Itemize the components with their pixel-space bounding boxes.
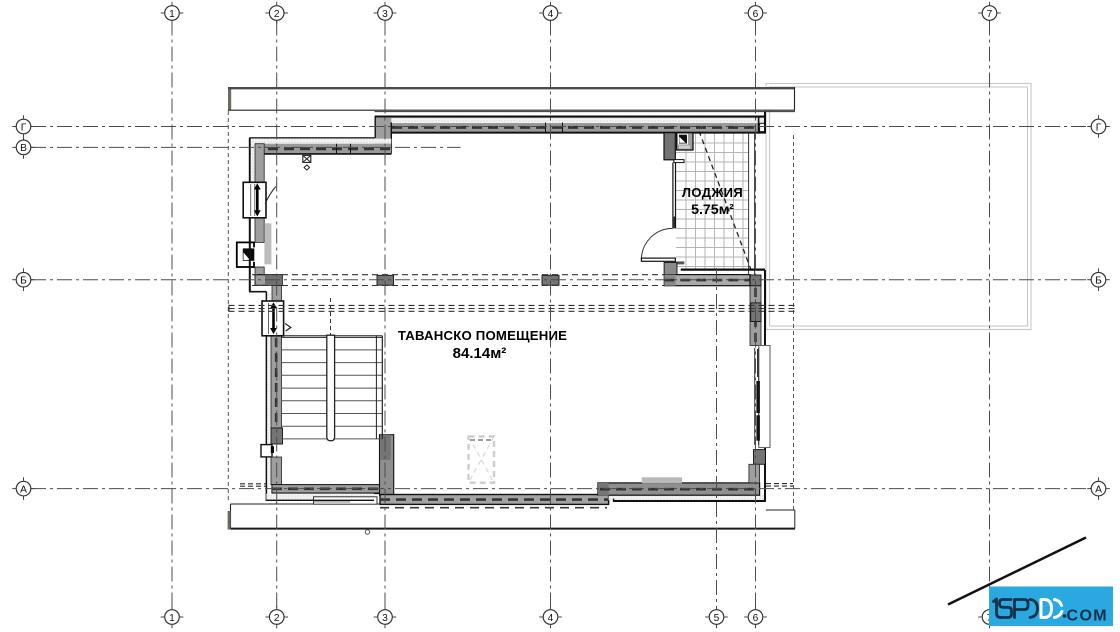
svg-text:ТАВАНСКО ПОМЕЩЕНИЕ: ТАВАНСКО ПОМЕЩЕНИЕ [398, 328, 567, 343]
svg-text:ЛОДЖИЯ: ЛОДЖИЯ [682, 185, 743, 200]
svg-text:1: 1 [169, 613, 175, 624]
svg-text:6: 6 [753, 9, 759, 20]
svg-text:Г: Г [1096, 122, 1102, 133]
svg-text:COM: COM [1067, 608, 1109, 625]
svg-text:4: 4 [548, 613, 554, 624]
svg-text:6: 6 [753, 613, 759, 624]
svg-text:Б: Б [1095, 276, 1102, 287]
svg-text:5: 5 [714, 613, 720, 624]
svg-text:84.14м²: 84.14м² [453, 345, 507, 362]
svg-text:А: А [1095, 484, 1102, 495]
svg-text:4: 4 [548, 9, 554, 20]
svg-text:В: В [20, 143, 27, 154]
svg-text:2: 2 [274, 613, 280, 624]
svg-text:2: 2 [274, 9, 280, 20]
svg-text:3: 3 [382, 9, 388, 20]
svg-text:7: 7 [987, 9, 993, 20]
svg-text:1: 1 [169, 9, 175, 20]
svg-text:Б: Б [20, 276, 27, 287]
svg-text:3: 3 [382, 613, 388, 624]
svg-text:5.75м²: 5.75м² [691, 202, 734, 218]
svg-text:А: А [20, 484, 27, 495]
svg-text:Г: Г [21, 122, 27, 133]
